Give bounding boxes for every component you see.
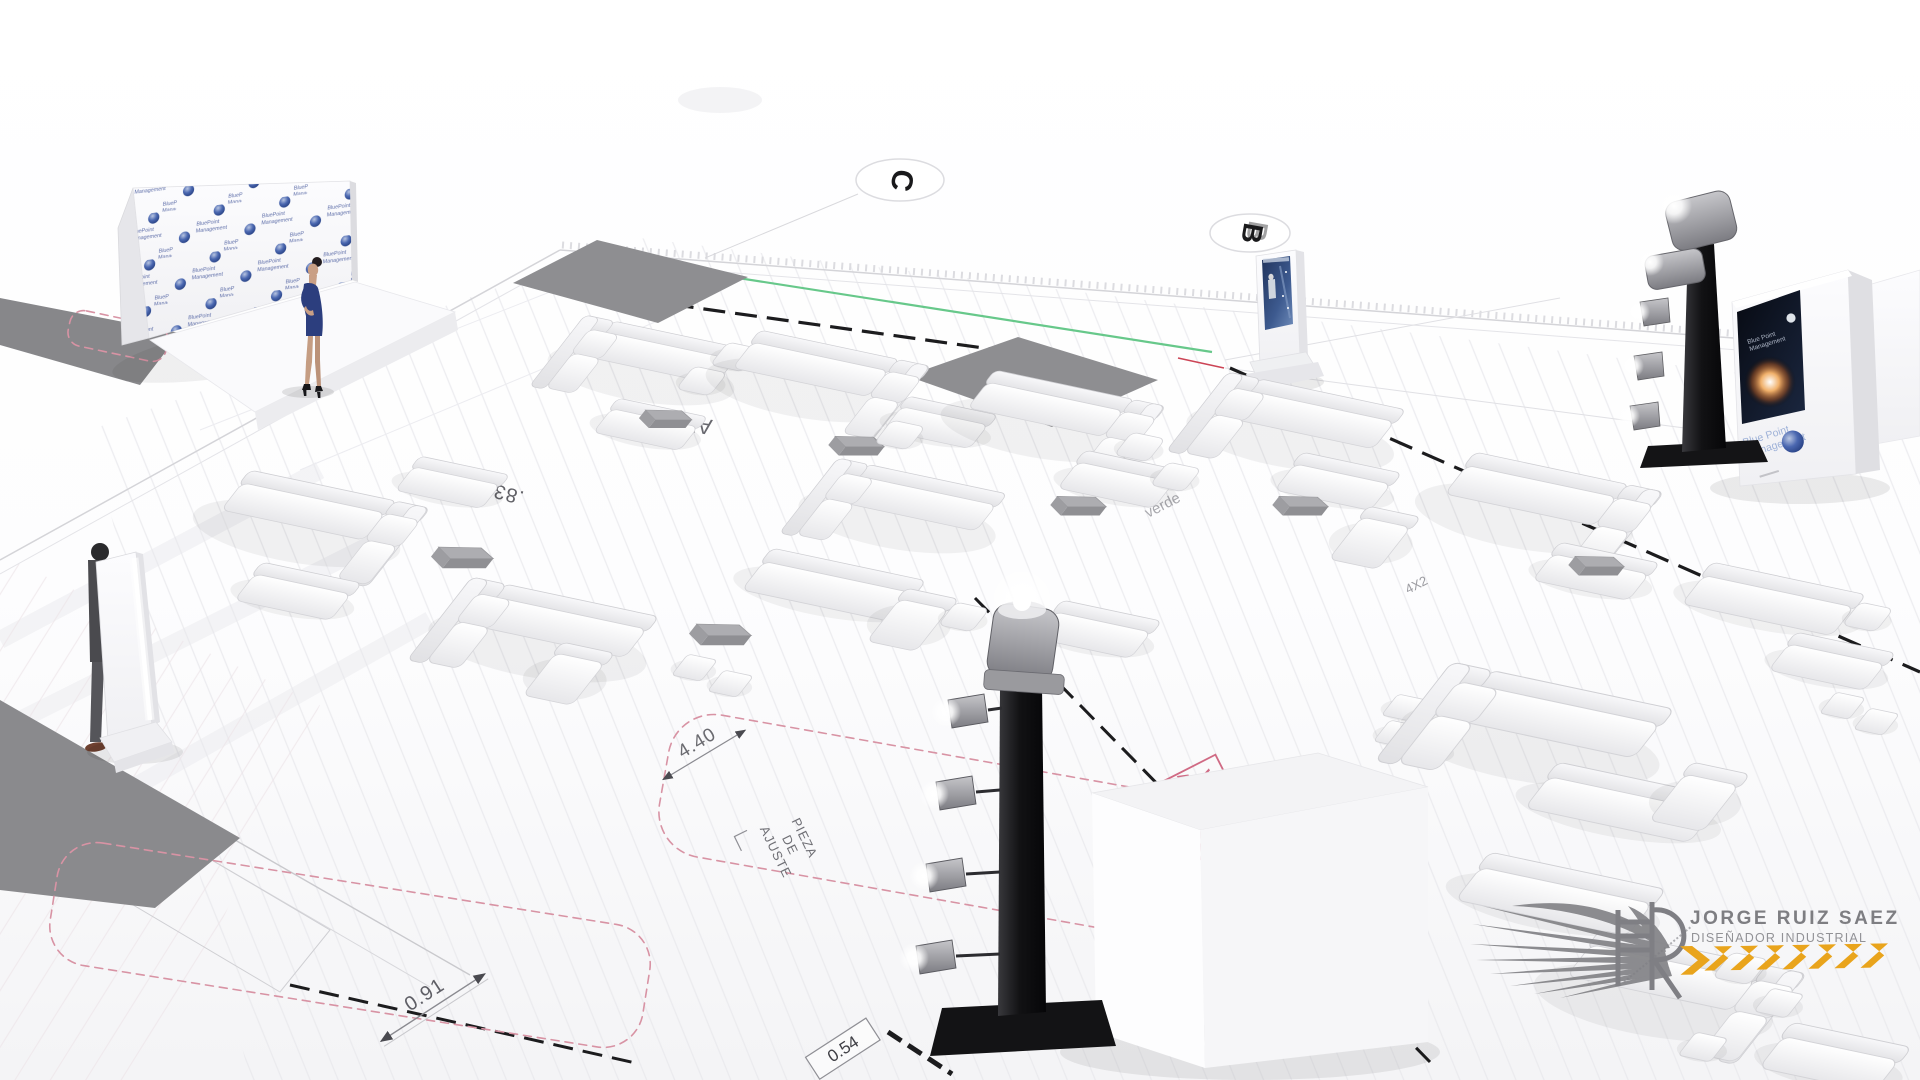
tower-center-moving-head (983, 566, 1064, 695)
grid-marker-b: B B (1210, 214, 1290, 252)
floor-smudge (678, 87, 762, 113)
screen-flare (1744, 356, 1796, 408)
scene-svg: BluePoint Management BluePoint Managemen… (0, 0, 1920, 1080)
screen-moon (1786, 313, 1795, 322)
watermark-subtitle: DISEÑADOR INDUSTRIAL (1691, 931, 1867, 945)
render-canvas: BluePoint Management BluePoint Managemen… (0, 0, 1920, 1080)
visitor-head (91, 543, 109, 561)
totem-b-screen (1262, 256, 1293, 330)
counter-block (1060, 753, 1440, 1080)
grid-marker-c: C (856, 159, 944, 201)
tower-center-column (998, 686, 1046, 1016)
totem-b-screen-figure (1268, 279, 1276, 299)
counter-front-right (1200, 787, 1428, 1068)
watermark-name: JORGE RUIZ SAEZ (1690, 908, 1900, 929)
hostess-head (308, 264, 318, 277)
